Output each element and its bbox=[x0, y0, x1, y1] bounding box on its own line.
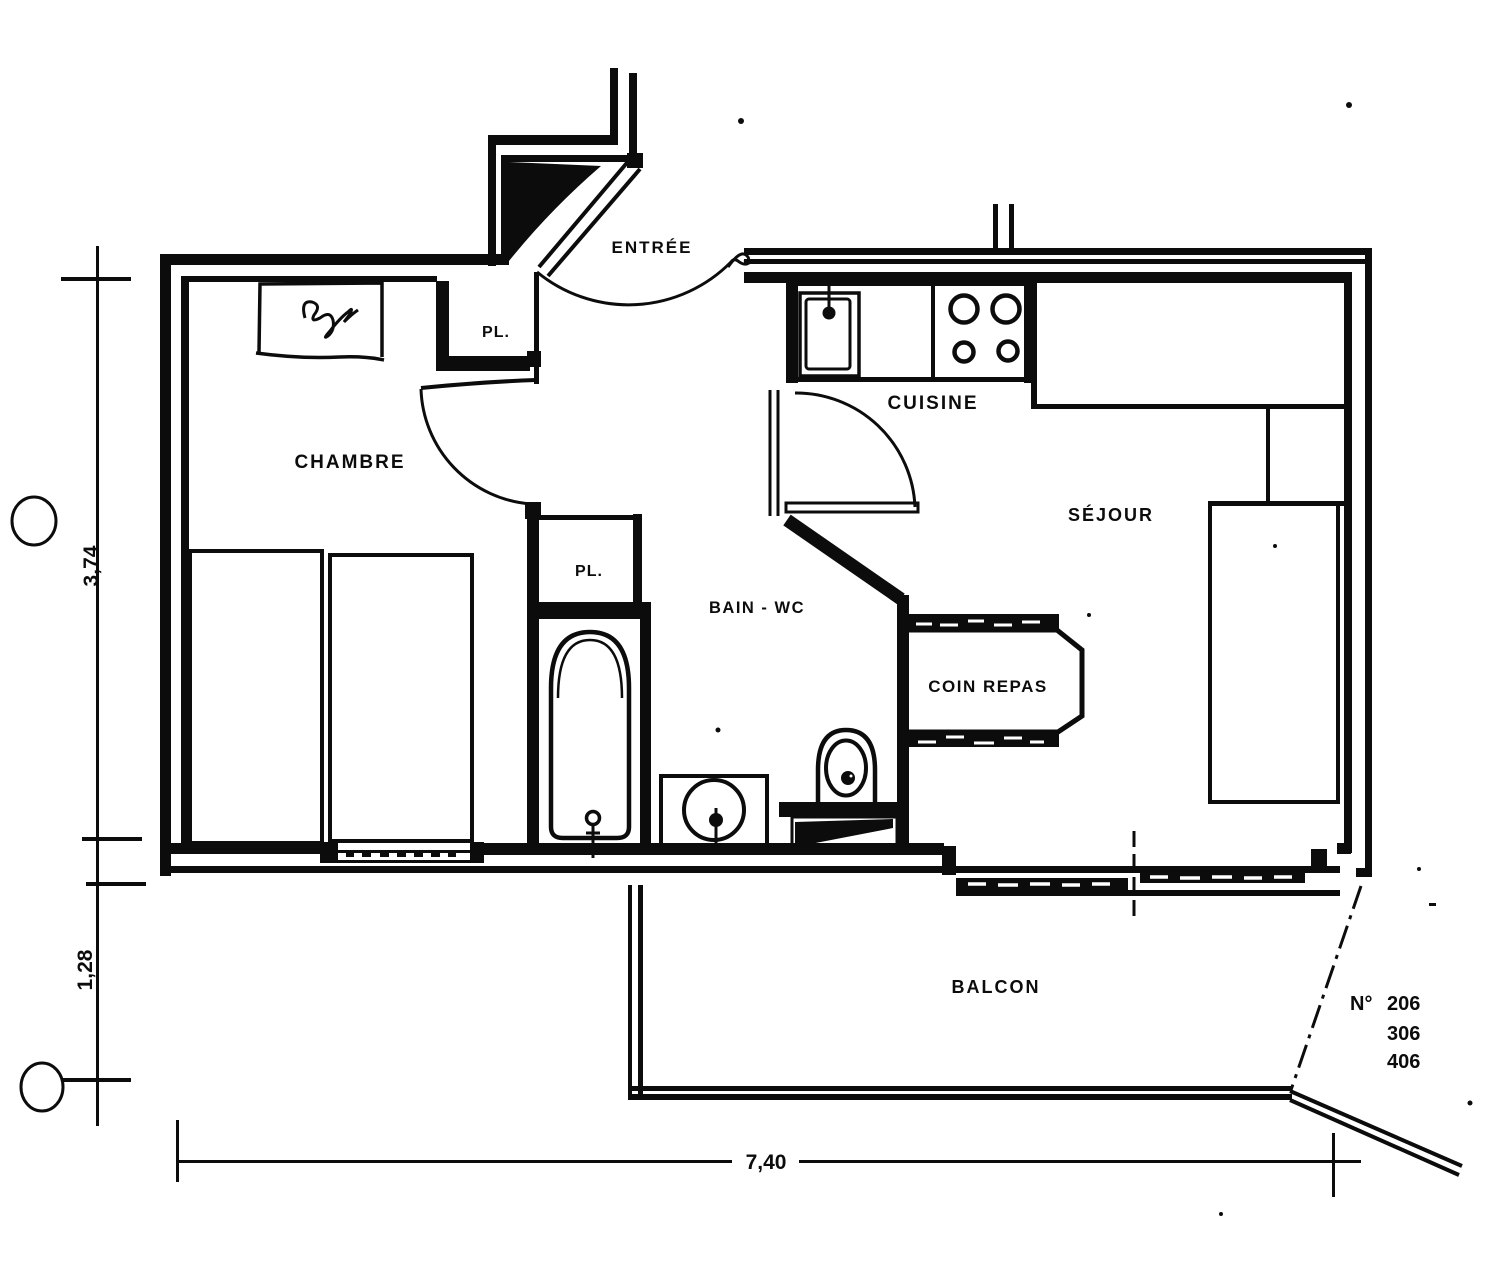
svg-text:ENTRÉE: ENTRÉE bbox=[612, 238, 693, 257]
svg-text:PL.: PL. bbox=[482, 324, 510, 341]
svg-text:PL.: PL. bbox=[575, 563, 603, 580]
svg-text:1,28: 1,28 bbox=[74, 949, 97, 990]
svg-text:N°: N° bbox=[1350, 993, 1372, 1015]
svg-text:CUISINE: CUISINE bbox=[887, 393, 978, 414]
svg-text:3,74: 3,74 bbox=[80, 545, 103, 586]
svg-text:306: 306 bbox=[1387, 1023, 1420, 1045]
svg-text:406: 406 bbox=[1387, 1051, 1420, 1073]
svg-text:BAIN - WC: BAIN - WC bbox=[709, 599, 805, 617]
svg-text:SÉJOUR: SÉJOUR bbox=[1068, 504, 1154, 525]
svg-text:206: 206 bbox=[1387, 993, 1420, 1015]
svg-text:7,40: 7,40 bbox=[746, 1151, 787, 1174]
svg-text:BALCON: BALCON bbox=[952, 977, 1041, 997]
svg-text:COIN REPAS: COIN REPAS bbox=[928, 677, 1048, 696]
svg-text:CHAMBRE: CHAMBRE bbox=[294, 452, 405, 473]
